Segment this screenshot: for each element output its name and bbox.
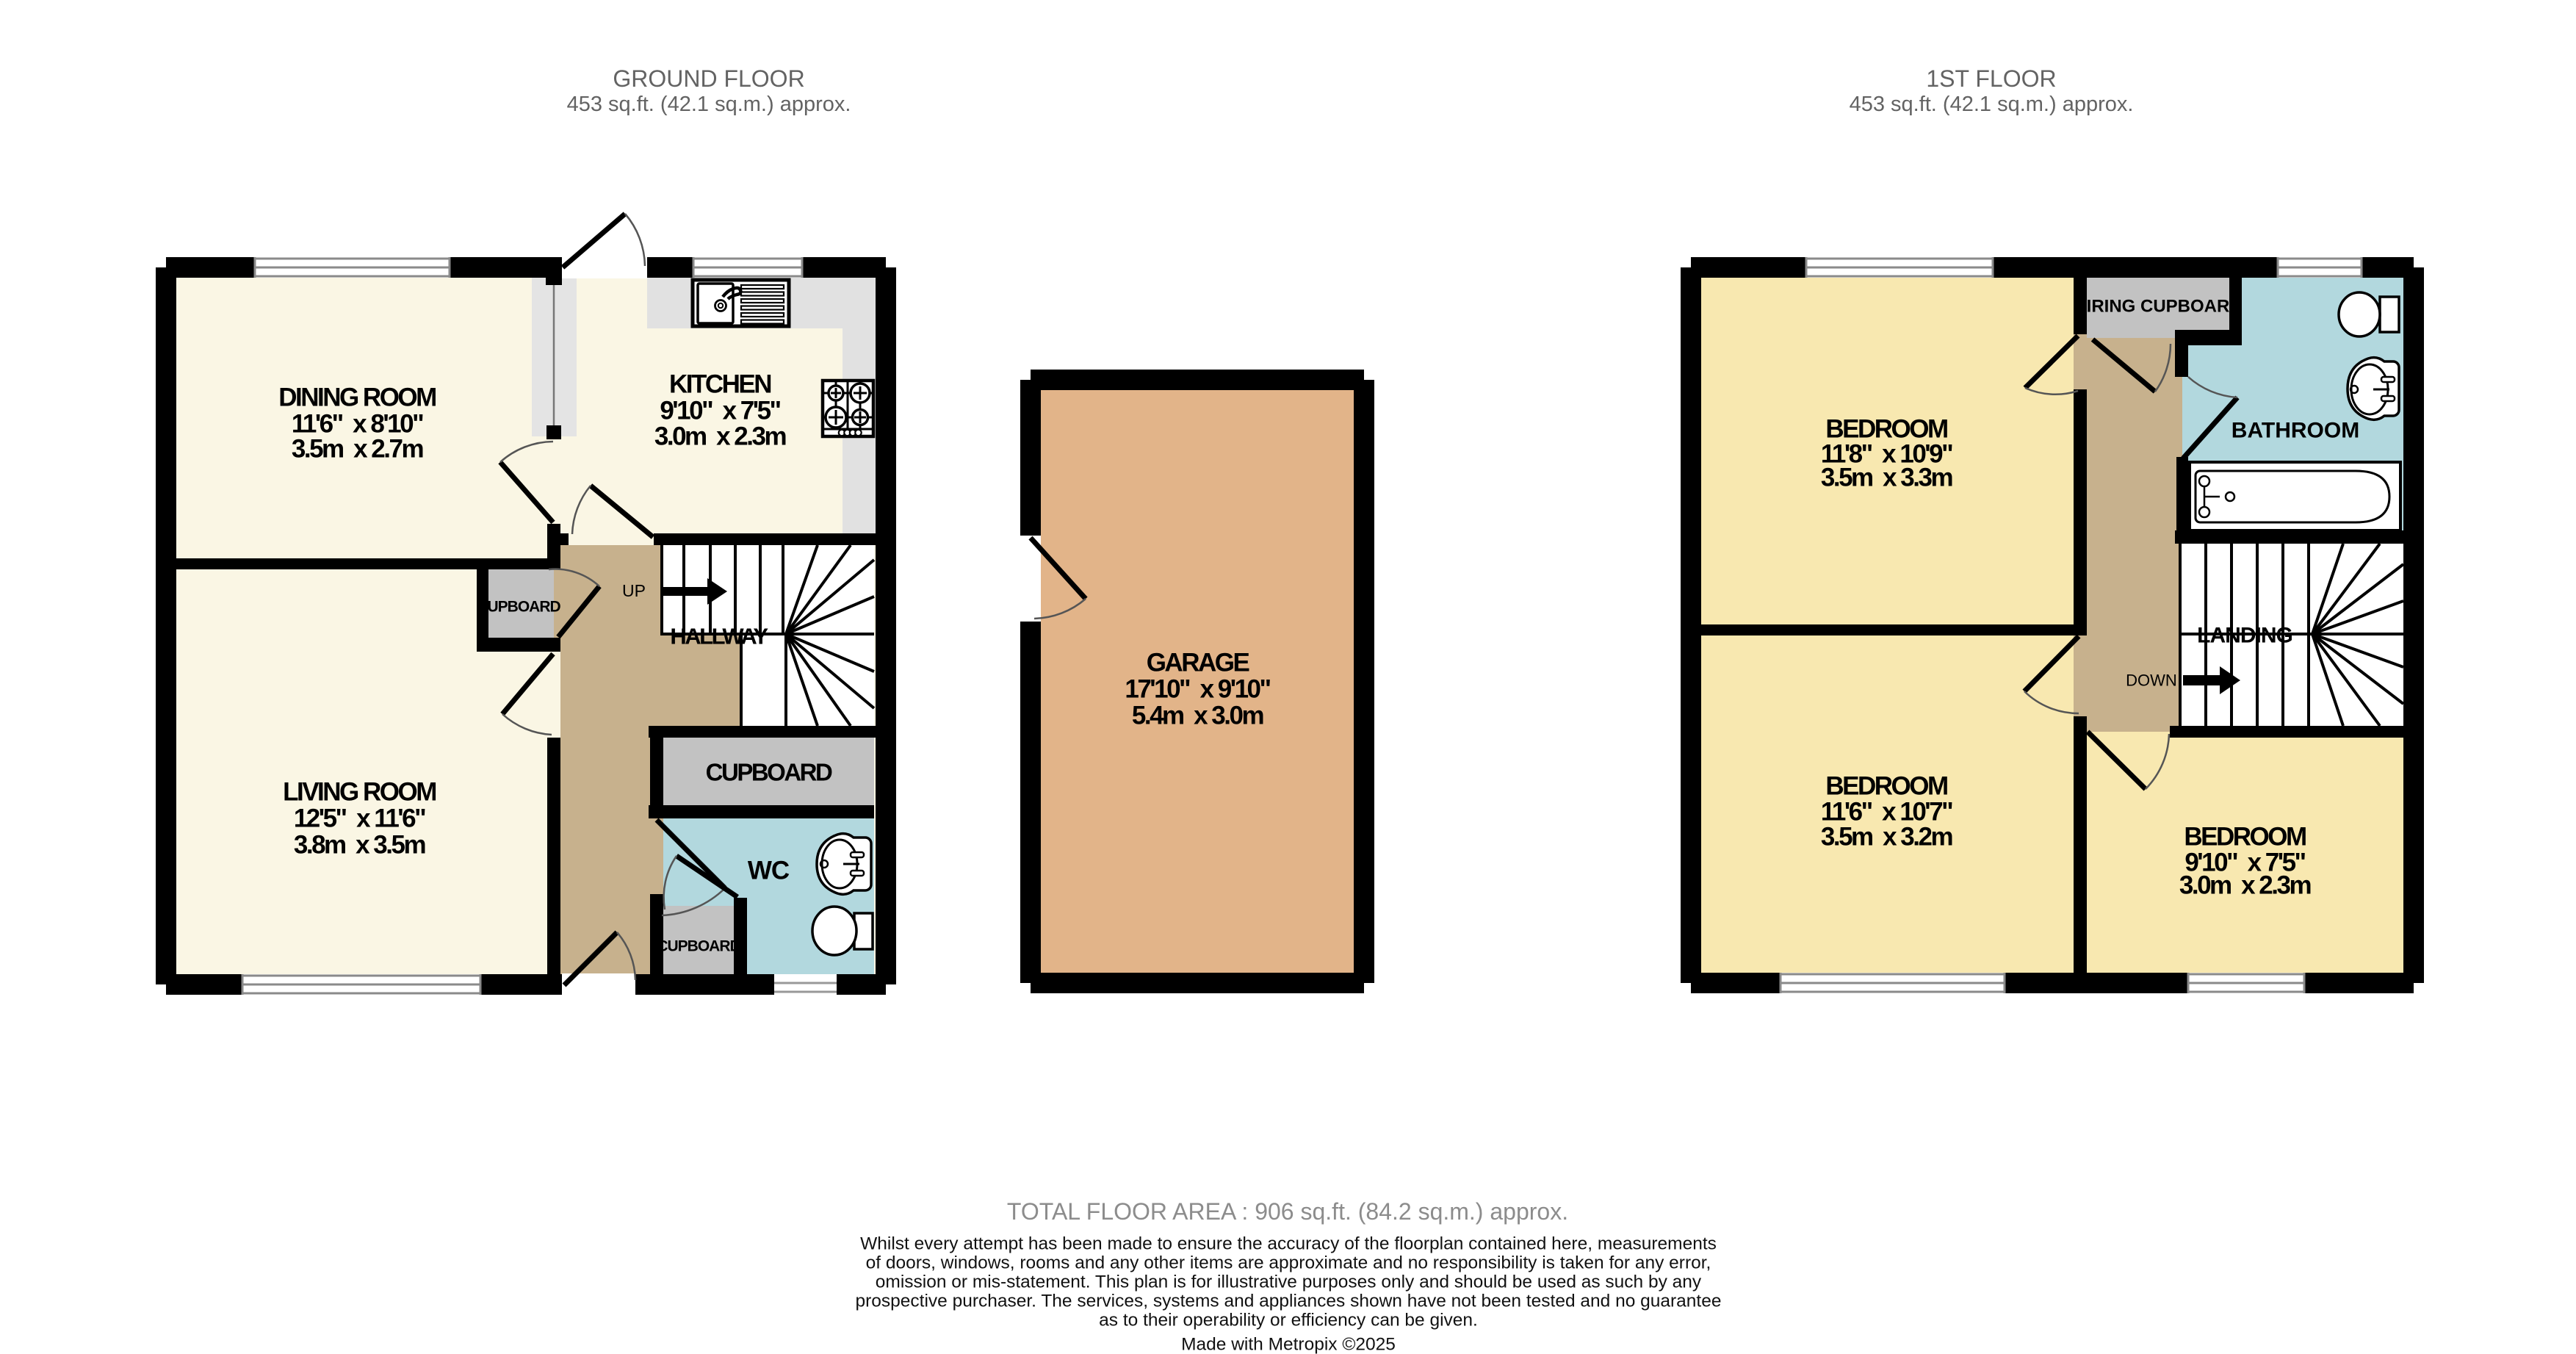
svg-text:GARAGE: GARAGE xyxy=(1147,649,1249,677)
svg-text:Made with Metropix ©2025: Made with Metropix ©2025 xyxy=(1181,1335,1396,1354)
svg-text:BEDROOM: BEDROOM xyxy=(1825,772,1947,801)
svg-text:CUPBOARD: CUPBOARD xyxy=(706,759,832,786)
svg-text:TOTAL FLOOR AREA : 906 sq.ft.: TOTAL FLOOR AREA : 906 sq.ft. (84.2 sq.m… xyxy=(1007,1198,1568,1225)
svg-text:1ST FLOOR: 1ST FLOOR xyxy=(1926,65,2056,92)
svg-text:LIVING ROOM: LIVING ROOM xyxy=(283,778,436,807)
svg-text:17'10" x 9'10": 17'10" x 9'10" xyxy=(1125,675,1270,704)
svg-text:omission or mis-statement. Thi: omission or mis-statement. This plan is … xyxy=(876,1272,1702,1292)
svg-text:BEDROOM: BEDROOM xyxy=(2184,823,2306,851)
svg-text:WC: WC xyxy=(748,857,790,885)
svg-text:12'5" x 11'6": 12'5" x 11'6" xyxy=(294,804,425,833)
svg-text:GROUND FLOOR: GROUND FLOOR xyxy=(613,65,804,92)
svg-text:3.5m x 3.3m: 3.5m x 3.3m xyxy=(1821,464,1952,492)
svg-text:as to their operability or eff: as to their operability or efficiency ca… xyxy=(1099,1311,1478,1330)
svg-text:BATHROOM: BATHROOM xyxy=(2232,419,2359,443)
svg-text:453 sq.ft. (42.1 sq.m.) approx: 453 sq.ft. (42.1 sq.m.) approx. xyxy=(567,93,851,116)
svg-text:5.4m x 3.0m: 5.4m x 3.0m xyxy=(1132,702,1263,730)
svg-text:of doors, windows, rooms and a: of doors, windows, rooms and any other i… xyxy=(866,1253,1711,1273)
svg-text:HALLWAY: HALLWAY xyxy=(670,624,768,649)
svg-text:3.5m x 2.7m: 3.5m x 2.7m xyxy=(292,435,423,464)
svg-text:prospective purchaser. The ser: prospective purchaser. The services, sys… xyxy=(855,1292,1721,1311)
svg-text:9'10" x 7'5": 9'10" x 7'5" xyxy=(660,397,780,425)
svg-text:DINING ROOM: DINING ROOM xyxy=(278,383,436,412)
svg-text:Whilst every attempt has been: Whilst every attempt has been made to en… xyxy=(860,1234,1717,1254)
svg-text:LANDING: LANDING xyxy=(2197,624,2292,648)
svg-text:UP: UP xyxy=(622,581,646,600)
svg-text:KITCHEN: KITCHEN xyxy=(669,370,771,399)
svg-text:AIRING CUPBOARD: AIRING CUPBOARD xyxy=(2074,297,2242,317)
svg-text:CUPBOARD: CUPBOARD xyxy=(657,938,740,955)
svg-text:3.0m x 2.3m: 3.0m x 2.3m xyxy=(2179,871,2311,900)
svg-text:3.0m x 2.3m: 3.0m x 2.3m xyxy=(654,422,786,451)
svg-text:CUPBOARD: CUPBOARD xyxy=(477,599,560,616)
svg-text:453 sq.ft. (42.1 sq.m.) approx: 453 sq.ft. (42.1 sq.m.) approx. xyxy=(1850,93,2134,116)
svg-text:DOWN: DOWN xyxy=(2126,671,2177,690)
svg-text:3.5m x 3.2m: 3.5m x 3.2m xyxy=(1821,823,1952,851)
svg-text:3.8m x 3.5m: 3.8m x 3.5m xyxy=(294,831,425,860)
